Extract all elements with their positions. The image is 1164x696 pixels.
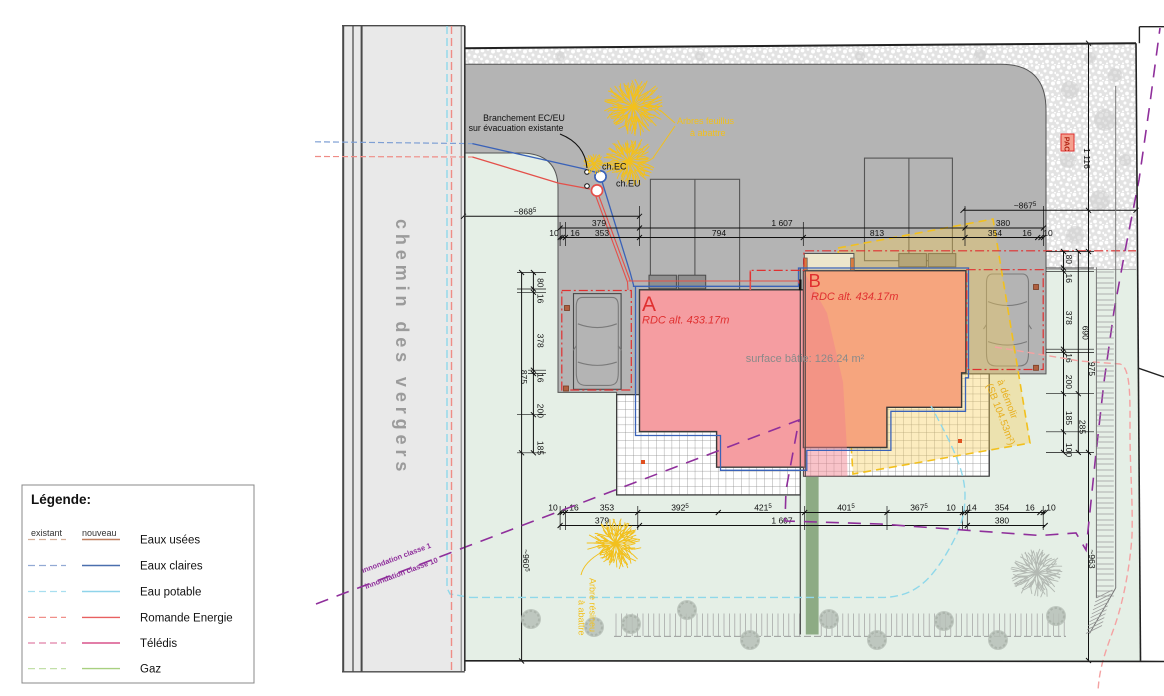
- svg-text:B: B: [809, 270, 821, 291]
- svg-text:353: 353: [600, 503, 614, 513]
- svg-text:RDC alt. 434.17m: RDC alt. 434.17m: [811, 291, 898, 303]
- svg-text:80: 80: [1064, 255, 1074, 265]
- svg-text:378: 378: [536, 334, 546, 348]
- svg-text:380: 380: [996, 218, 1010, 228]
- svg-text:1 607: 1 607: [771, 218, 793, 228]
- svg-text:80: 80: [536, 278, 546, 288]
- svg-text:à abattre: à abattre: [577, 600, 587, 636]
- svg-text:Eaux usées: Eaux usées: [140, 535, 200, 547]
- svg-text:16: 16: [1025, 503, 1035, 513]
- svg-text:Arbres feuillus: Arbres feuillus: [677, 116, 735, 126]
- svg-text:Eaux claires: Eaux claires: [140, 561, 203, 573]
- svg-text:975: 975: [1087, 362, 1097, 376]
- svg-text:Arbre résineu: Arbre résineu: [588, 578, 598, 632]
- svg-text:1 116: 1 116: [1082, 148, 1092, 169]
- svg-text:1 607: 1 607: [771, 515, 793, 525]
- svg-text:PAC: PAC: [1063, 137, 1072, 152]
- svg-text:794: 794: [712, 228, 726, 238]
- svg-text:14: 14: [967, 503, 977, 513]
- svg-text:nouveau: nouveau: [82, 528, 117, 538]
- svg-text:A: A: [642, 293, 656, 316]
- svg-text:200: 200: [1064, 375, 1074, 389]
- svg-text:380: 380: [995, 515, 1009, 525]
- svg-text:Branchement EC/EU: Branchement EC/EU: [483, 113, 565, 123]
- svg-text:16: 16: [1022, 228, 1032, 238]
- svg-text:285: 285: [1078, 420, 1088, 434]
- svg-text:200: 200: [536, 404, 546, 418]
- svg-text:10: 10: [1043, 228, 1053, 238]
- svg-text:16: 16: [536, 294, 546, 304]
- svg-text:16: 16: [1064, 273, 1074, 283]
- svg-text:354: 354: [988, 228, 1002, 238]
- svg-text:354: 354: [995, 503, 1009, 513]
- svg-text:10: 10: [1046, 503, 1056, 513]
- svg-text:813: 813: [870, 228, 884, 238]
- svg-text:379: 379: [592, 218, 606, 228]
- svg-text:353: 353: [595, 228, 609, 238]
- svg-text:10: 10: [548, 503, 558, 513]
- svg-text:378: 378: [1064, 311, 1074, 325]
- svg-text:ch.EU: ch.EU: [616, 179, 641, 189]
- svg-text:Télédis: Télédis: [140, 638, 177, 650]
- svg-text:~963: ~963: [1087, 549, 1097, 568]
- svg-text:ch.EC: ch.EC: [602, 162, 627, 172]
- svg-text:Gaz: Gaz: [140, 664, 161, 676]
- svg-text:surface bâtie: 126.24 m²: surface bâtie: 126.24 m²: [746, 353, 865, 365]
- svg-text:Eau potable: Eau potable: [140, 587, 201, 599]
- svg-text:100: 100: [1064, 443, 1074, 457]
- svg-text:185: 185: [1064, 411, 1074, 425]
- svg-text:10: 10: [549, 228, 559, 238]
- svg-text:Romande Energie: Romande Energie: [140, 612, 233, 624]
- svg-text:185: 185: [536, 441, 546, 455]
- svg-text:10: 10: [946, 503, 956, 513]
- svg-text:chemin des vergers: chemin des vergers: [392, 219, 412, 476]
- svg-text:Légende:: Légende:: [31, 492, 91, 507]
- svg-text:16: 16: [536, 373, 546, 383]
- svg-text:16: 16: [570, 228, 580, 238]
- svg-text:existant: existant: [31, 528, 63, 538]
- svg-text:875: 875: [519, 370, 529, 384]
- svg-text:à abattre: à abattre: [690, 128, 726, 138]
- svg-text:RDC alt. 433.17m: RDC alt. 433.17m: [642, 315, 729, 327]
- svg-text:sur évacuation existante: sur évacuation existante: [469, 123, 564, 133]
